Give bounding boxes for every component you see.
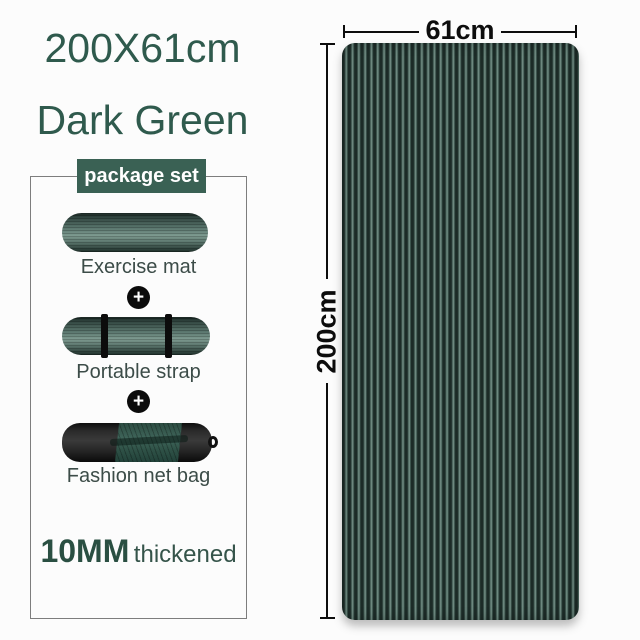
thickness-word: thickened [134,541,237,568]
strap-band [101,314,108,358]
plus-icon: + [127,390,150,413]
dimension-line [345,31,419,33]
height-value: 200cm [314,289,341,373]
dimension-tick [320,617,335,619]
product-image: 200X61cm Dark Green package set Exercise… [0,0,640,640]
height-dimension: 200cm [318,43,336,619]
plus-icon: + [127,286,150,309]
width-value: 61cm [419,17,500,44]
exercise-mat-roll-image [62,213,208,252]
strap-band [165,314,172,358]
net-bag-image [62,423,212,462]
portable-strap-roll-image [62,317,210,355]
net-bag-loop [208,436,218,448]
width-dimension: 61cm [343,24,577,39]
dimension-line [326,45,328,279]
yoga-mat-preview [342,43,579,620]
dimension-line [501,31,575,33]
thickness-value: 10MM [40,533,129,569]
dimension-tick [575,25,577,38]
net-bag-label: Fashion net bag [30,465,247,488]
dimension-line [326,383,328,617]
color-title: Dark Green [0,97,285,144]
thickness-note: 10MM thickened [30,533,247,570]
package-set-label: package set [77,159,206,193]
size-title: 200X61cm [0,25,285,72]
exercise-mat-label: Exercise mat [30,256,247,279]
portable-strap-label: Portable strap [30,361,247,384]
